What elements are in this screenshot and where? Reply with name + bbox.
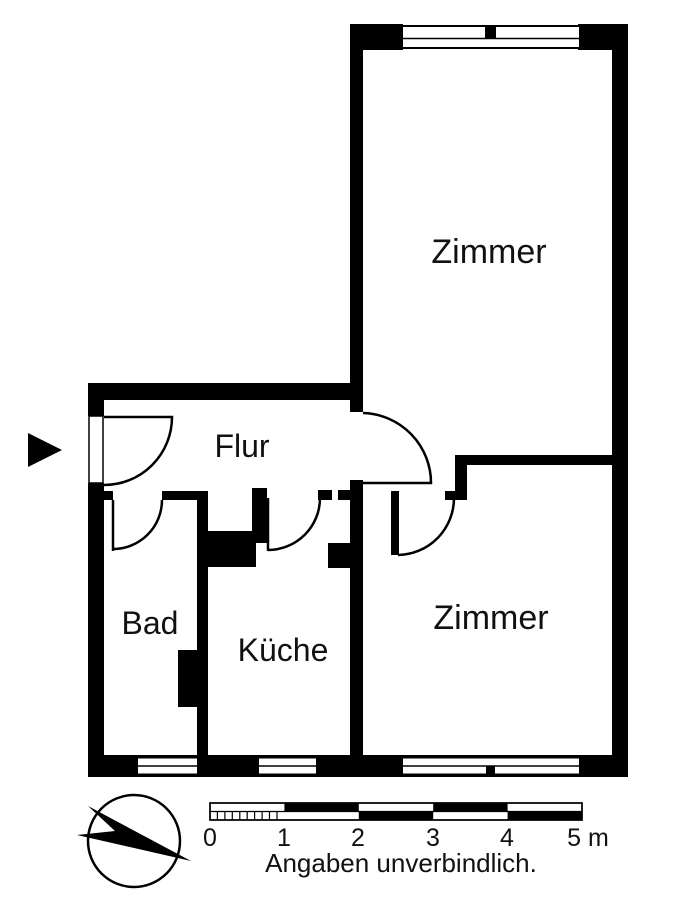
- walls: [88, 24, 628, 777]
- floor-plan-page: Zimmer Zimmer Flur Bad Küche: [0, 0, 675, 900]
- north-arrow-icon: [77, 806, 191, 861]
- scale-label-5m: 5 m: [567, 824, 609, 852]
- room-label-bad: Bad: [122, 605, 179, 641]
- room-label-zimmer-top: Zimmer: [431, 233, 546, 271]
- scale-bar: 0 1 2 3 4 5 m: [203, 803, 609, 852]
- room-label-flur: Flur: [214, 428, 269, 464]
- bad-door-swing: [113, 500, 162, 551]
- floor-plan-canvas: Zimmer Zimmer Flur Bad Küche: [0, 0, 675, 900]
- window-top: [402, 26, 580, 48]
- disclaimer-caption: Angaben unverbindlich.: [265, 848, 537, 878]
- window-kueche: [258, 758, 317, 775]
- entrance-door-swing: [104, 417, 172, 485]
- hall-door-swing: [352, 413, 431, 483]
- entrance-arrow-icon: [28, 433, 62, 467]
- kueche-door-swing: [268, 498, 320, 551]
- zimmer-bottom-door-swing: [398, 498, 454, 555]
- entrance-door-opening: [89, 416, 103, 483]
- room-label-kueche: Küche: [238, 632, 329, 668]
- room-labels: Zimmer Zimmer Flur Bad Küche: [122, 233, 549, 668]
- room-label-zimmer-bottom: Zimmer: [433, 599, 548, 637]
- doors: [89, 413, 454, 555]
- window-bad: [137, 758, 198, 775]
- north-compass: [77, 795, 191, 887]
- window-zimmer-bottom: [402, 758, 580, 775]
- scale-label-0: 0: [203, 824, 217, 852]
